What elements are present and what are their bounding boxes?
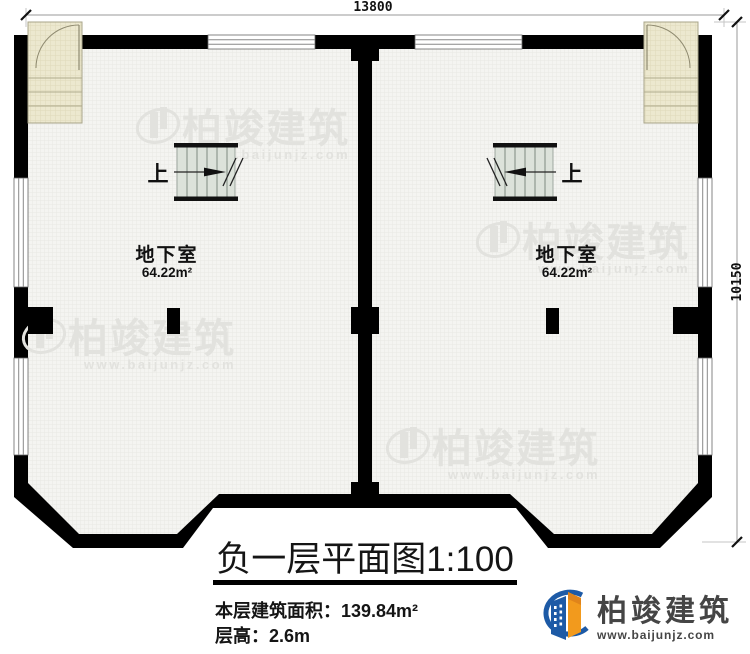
watermark-logo-icon [400,432,408,458]
floor-area-line: 本层建筑面积：139.84m² [215,600,418,621]
exterior-stair-right [644,22,698,123]
watermark-logo-icon [500,221,507,243]
pilaster [351,307,379,334]
window-top-right [415,35,522,49]
window-top-left [208,35,315,49]
brand-logo-icon [546,592,587,640]
pilaster [351,49,379,61]
title-block: 负一层平面图1:100 本层建筑面积：139.84m² 层高：2.6m [213,540,517,646]
basement-floor-plan-drawing: 13800 10150 柏竣建筑 www.baijunjz.com 柏竣建筑 w… [0,0,750,654]
pilaster [28,307,53,334]
pilaster [351,482,379,494]
logo-building-blue [551,596,566,640]
watermark-brand: 柏竣建筑 [68,317,236,361]
room-label-right: 地下室 64.22m² [535,243,598,280]
watermark-url: www.baijunjz.com [447,467,600,482]
column [167,308,180,334]
brand-logo-name: 柏竣建筑 [597,594,733,628]
watermark-logo-icon [150,112,158,138]
basement-floor-plan-page: 13800 10150 柏竣建筑 www.baijunjz.com 柏竣建筑 w… [0,0,750,654]
window-left-upper [14,178,28,287]
middle-wall [358,49,372,494]
room-name: 地下室 [135,243,198,266]
room-name: 地下室 [535,243,598,266]
window-right-upper [698,178,712,287]
floor-height-value: 2.6m [269,626,310,646]
watermark-url: www.baijunjz.com [83,357,236,372]
plan-title: 负一层平面图1:100 [216,540,514,579]
column [546,308,559,334]
floor-height-label: 层高： [215,625,269,646]
title-underline [213,580,517,585]
floor-area-label: 本层建筑面积： [215,600,341,621]
watermark-brand: 柏竣建筑 [432,427,600,471]
watermark-logo-icon [160,107,167,129]
brand-logo: 柏竣建筑 www.baijunjz.com [546,592,733,642]
dimension-top: 13800 [21,0,729,27]
room-area: 64.22m² [542,265,593,280]
watermark-logo-icon [490,226,498,252]
floor-area-value: 139.84m² [341,601,418,621]
window-left-lower [14,358,28,455]
room-label-left: 地下室 64.22m² [135,243,198,280]
floor-height-line: 层高：2.6m [215,625,310,646]
stair-up-label: 上 [562,163,583,186]
dim-right-value: 10150 [730,262,745,301]
dim-top-value: 13800 [353,0,392,15]
watermark-logo-icon [410,427,417,449]
exterior-stair-left [28,22,82,123]
window-right-lower [698,358,712,455]
brand-logo-url: www.baijunjz.com [596,628,715,642]
stair-up-label: 上 [148,163,169,186]
room-area: 64.22m² [142,265,193,280]
pilaster [673,307,698,334]
